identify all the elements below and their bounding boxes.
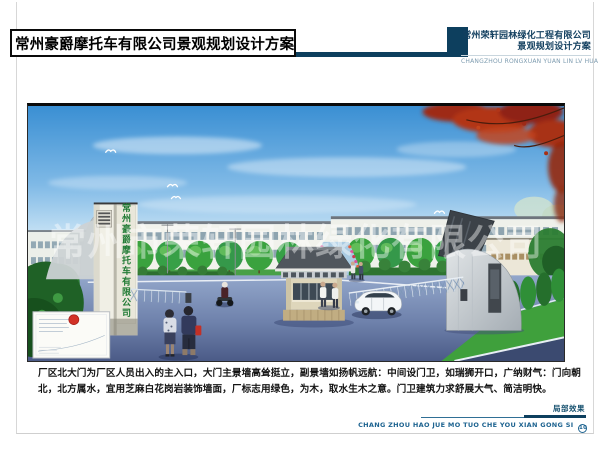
footer-rule-thin (421, 417, 524, 418)
rendering-image: 常州市荣轩园林绿化有限公司 常州豪爵摩托车有限公司 (27, 103, 565, 362)
footer-pinyin: CHANG ZHOU HAO JUE MO TUO CHE YOU XIAN G… (358, 421, 587, 433)
footer-label: 局部效果 (553, 403, 585, 414)
stamp-icon (69, 315, 79, 325)
main-title: 常州豪爵摩托车有限公司景观规划设计方案 (12, 33, 294, 54)
company-name: 常州荣轩园林绿化工程有限公司 (461, 31, 591, 42)
page-number-badge: 10 (578, 424, 587, 433)
company-pinyin: CHANGZHOU RONGXUAN YUAN LIN LV HUA (461, 55, 591, 65)
footer-pinyin-text: CHANG ZHOU HAO JUE MO TUO CHE YOU XIAN G… (358, 421, 573, 429)
company-subtitle: 景观规划设计方案 (461, 42, 591, 53)
rendering-scene (28, 106, 564, 361)
company-block: 常州荣轩园林绿化工程有限公司 景观规划设计方案 CHANGZHOU RONGXU… (461, 31, 591, 65)
site-plan-inset (33, 312, 110, 358)
footer-rule-thick (524, 415, 586, 418)
guard-house (274, 247, 354, 328)
main-title-box: 常州豪爵摩托车有限公司景观规划设计方案 (10, 29, 296, 57)
factory-sign-vertical: 常州豪爵摩托车有限公司 (117, 203, 133, 329)
description-text: 厂区北大门为厂区人员出入的主入口，大门主景墙高耸挺立，副景墙如扬帆远航：中间设门… (38, 366, 581, 397)
